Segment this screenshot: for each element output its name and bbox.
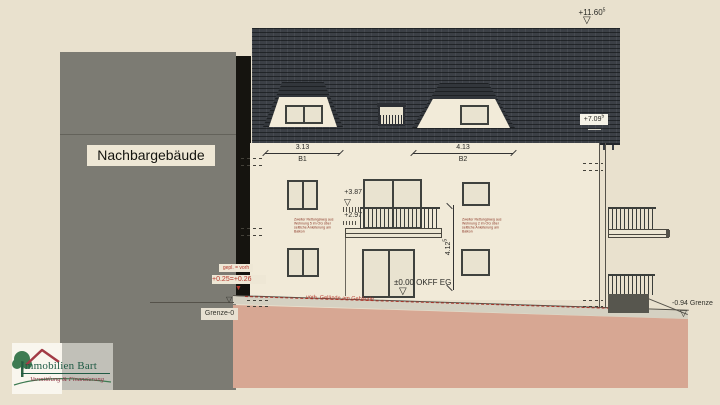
roof-window-railing: [380, 115, 403, 124]
boundary-left-marker-icon: [226, 295, 232, 305]
elevation-drawing: Nachbargebäude +11.605 +7.095 3.13 B1 4.…: [0, 0, 720, 405]
ref-dash: [583, 300, 603, 301]
level-comparison: +0.25=+0.26: [212, 275, 266, 284]
ref-dash: [241, 228, 265, 229]
ref-dash: [583, 163, 603, 164]
boundary-left-label: Grenze-0: [201, 308, 238, 320]
logo-underline: [21, 373, 110, 374]
ref-dash: [241, 235, 265, 236]
window-og-left: [287, 180, 318, 210]
window-eg-right: [461, 249, 490, 276]
boundary-line-left: [150, 302, 234, 303]
balcony-center-slab: [345, 228, 442, 238]
rescue-note-right: Zweiter Rettungsweg aus Wohnung 2 im OG …: [462, 218, 504, 250]
right-wall-line-outer: [599, 143, 600, 311]
roof-window-header: [377, 103, 406, 107]
dormer-left-window: [285, 105, 323, 124]
ref-dash: [247, 300, 269, 301]
window-mullion: [388, 251, 390, 296]
dim-b2-line: [413, 153, 513, 154]
downpipe: [345, 238, 346, 296]
ridge-level-marker-icon: [583, 16, 591, 26]
window-mullion: [302, 250, 304, 275]
window-mullion: [303, 107, 305, 122]
eaves-height-label: +7.095: [580, 114, 608, 125]
company-logo: Immobilien Bart Vermittlung & Finanzieru…: [12, 343, 113, 394]
eaves-height-value: +7.09: [584, 116, 602, 123]
boundary-right-label: -0.94 Grenze: [672, 300, 720, 308]
og-level-marker-icon: [344, 197, 351, 207]
ridge-height-marker: +11.605: [568, 8, 616, 17]
balcony-center-railing: [360, 207, 440, 228]
neighbor-building: [60, 52, 236, 390]
window-og-right: [462, 182, 490, 206]
dim-b2-label: B2: [413, 156, 513, 164]
dim-b1-line: [265, 153, 340, 154]
logo-title: Immobilien Bart: [21, 360, 113, 372]
red-level-marker-icon: [235, 285, 242, 292]
logo-subtitle: Vermittlung & Finanzierung: [22, 376, 112, 384]
balcony-right-lower-base: [608, 294, 649, 313]
balcony-right-upper-railing: [608, 207, 656, 229]
balcony-right-upper-slab: [608, 229, 669, 238]
balcony-bracket: [666, 230, 670, 237]
window-mullion: [302, 182, 304, 208]
gepl-vorh-note: gepl. = vorh: [219, 264, 253, 272]
dim-b1-label: B1: [265, 156, 340, 164]
dim-height-value: 4.125: [445, 232, 453, 262]
section-hatch: [343, 221, 357, 225]
eg-level-marker-icon: [399, 287, 407, 297]
balcony-right-lower-railing: [608, 274, 655, 295]
balcony-height-marker: +2.97: [334, 212, 362, 220]
roof-window: [378, 103, 405, 126]
ref-dash: [583, 170, 603, 171]
gepl-level-value: +0.25: [212, 276, 230, 283]
og-height-marker: +3.87: [334, 189, 362, 197]
eaves-marker-tick: [588, 129, 601, 130]
rescue-note-left: Zweiter Rettungsweg aus Wohnung 5 im OG …: [294, 218, 336, 250]
neighbor-building-label: Nachbargebäude: [87, 145, 215, 166]
ref-dash: [583, 306, 603, 307]
dim-b1-value: 3.13: [265, 144, 340, 152]
ref-dash: [247, 306, 269, 307]
boundary-right-marker-icon: [680, 308, 687, 318]
terrace-door-eg: [362, 249, 415, 298]
right-wall-line-inner: [605, 143, 606, 313]
ref-dash: [241, 158, 265, 159]
dormer-right: [412, 83, 515, 128]
dormer-left: [263, 82, 343, 127]
dim-b2-value: 4.13: [413, 144, 513, 152]
vorh-level-value: +0.26: [234, 276, 252, 283]
dormer-right-window: [460, 105, 489, 125]
window-eg-left: [287, 248, 319, 277]
ref-dash: [241, 165, 265, 166]
neighbor-floor-line: [60, 134, 236, 135]
